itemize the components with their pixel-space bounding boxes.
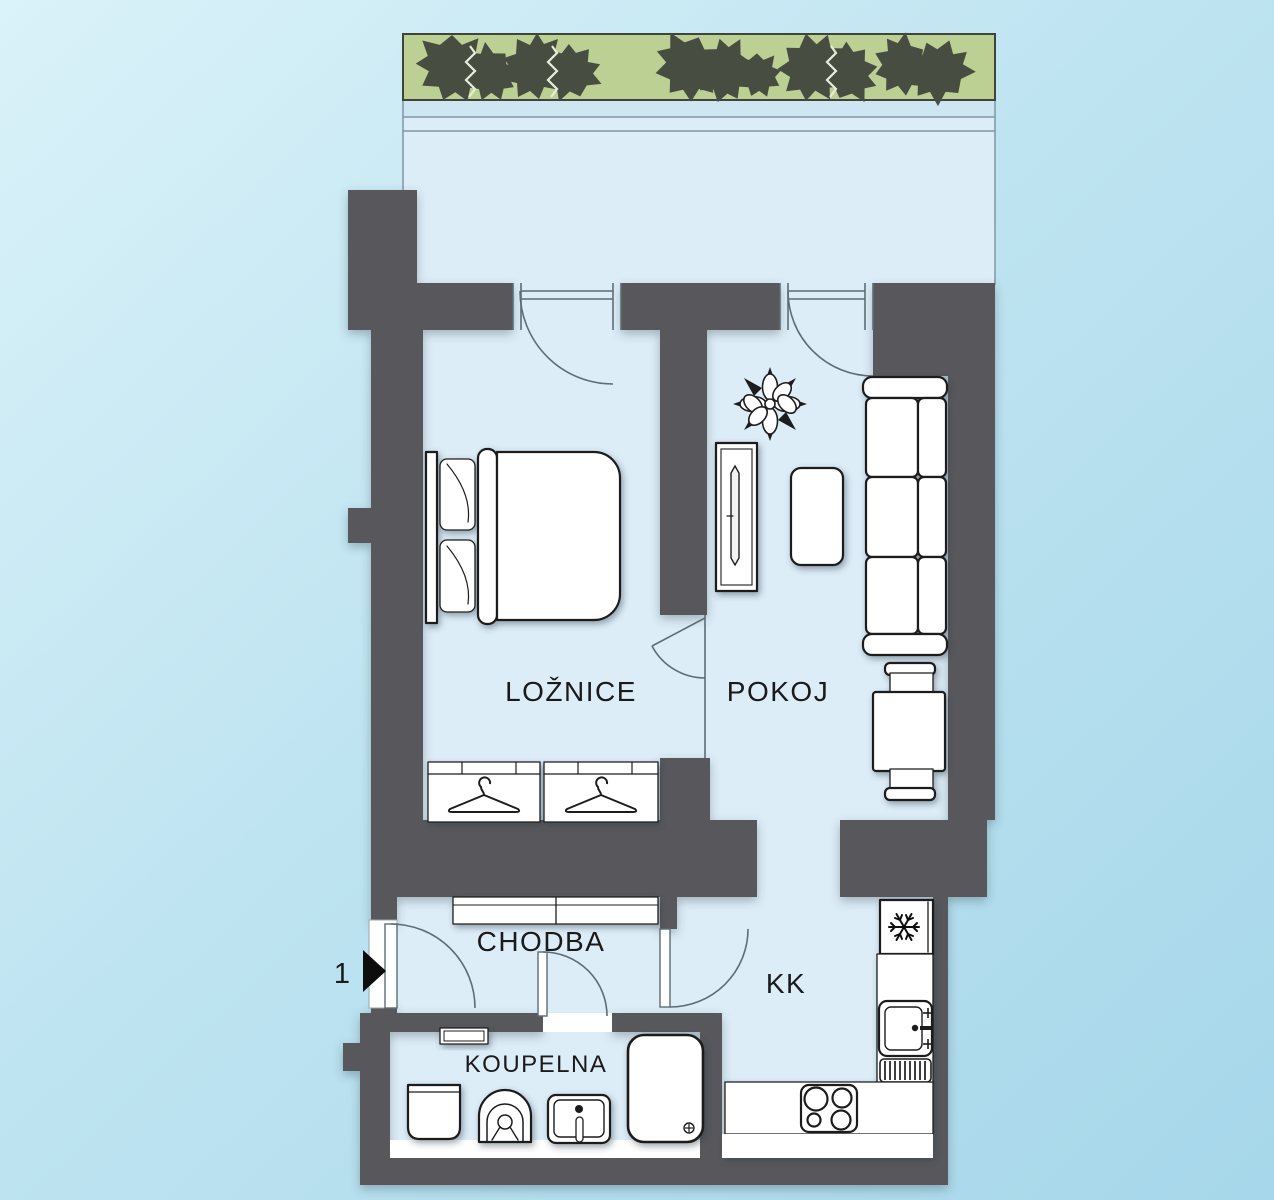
chair-seat	[890, 673, 933, 694]
wall	[360, 1158, 948, 1185]
sofa-seat	[866, 398, 918, 477]
sofa	[863, 377, 947, 655]
wall	[348, 508, 371, 543]
flower-icon	[733, 367, 807, 441]
bathroom-sink	[548, 1095, 610, 1143]
hall-closet	[453, 897, 658, 924]
drain-icon	[575, 1105, 583, 1113]
tv-cabinet	[716, 443, 757, 591]
wall	[933, 897, 948, 1160]
counter-backsplash	[722, 1134, 933, 1158]
burner-icon	[808, 1114, 821, 1127]
floor-plan-canvas: 1 LOŽNICE POKOJ CHODBA KK KOUPELNA	[0, 0, 1274, 1200]
burner-icon	[805, 1088, 828, 1111]
greenery-strip	[403, 23, 995, 115]
floor-plan-page: 1 LOŽNICE POKOJ CHODBA KK KOUPELNA	[0, 0, 1274, 1200]
burner-icon	[832, 1111, 851, 1130]
wall	[343, 1043, 360, 1071]
wall-shelf	[440, 1028, 488, 1044]
faucet-icon	[576, 1117, 583, 1142]
sofa-seat	[866, 557, 918, 634]
balcony-door-bay-1	[513, 283, 621, 330]
wall	[660, 897, 677, 929]
bed-duvet-fold	[478, 449, 497, 624]
room-label-loznice: LOŽNICE	[505, 676, 637, 707]
bed-mattress	[497, 452, 620, 620]
chair-back	[885, 788, 935, 800]
sofa-seat	[866, 477, 918, 557]
washing-machine	[408, 1085, 460, 1139]
sofa-backrest	[918, 398, 946, 477]
terrace	[403, 23, 995, 285]
room-label-chodba: CHODBA	[477, 926, 606, 957]
bed-headboard	[426, 452, 437, 623]
door-leaf	[660, 929, 670, 1007]
room-label-koupelna: KOUPELNA	[465, 1051, 608, 1078]
pillow	[440, 459, 475, 530]
room-label-kk: KK	[766, 968, 806, 999]
wall	[612, 1013, 722, 1032]
wall	[348, 190, 417, 285]
door-sill	[543, 1013, 612, 1032]
door-leaf	[538, 952, 547, 1016]
terrace-edge-band	[403, 100, 995, 117]
entrance-number: 1	[334, 958, 350, 990]
room-label-pokoj: POKOJ	[727, 676, 829, 707]
shower	[628, 1035, 703, 1142]
wall	[948, 283, 995, 820]
sofa-backrest	[918, 557, 946, 634]
drain-icon	[912, 1025, 918, 1031]
sofa-armrest	[863, 377, 947, 398]
terrace-floor	[403, 100, 995, 285]
toilet	[479, 1090, 531, 1142]
wall	[371, 897, 397, 922]
burner-icon	[833, 1089, 852, 1108]
wall	[660, 758, 710, 822]
chair-seat	[890, 769, 933, 790]
dining-table	[873, 692, 945, 771]
door-leaf	[385, 924, 397, 1008]
sofa-backrest	[918, 477, 946, 557]
wall	[840, 820, 987, 897]
pillow	[440, 540, 475, 612]
wall	[371, 283, 423, 820]
floor-passage	[757, 820, 840, 897]
sofa-armrest	[863, 634, 947, 655]
wall	[371, 820, 757, 897]
wall-partition	[660, 283, 707, 615]
coffee-table	[791, 468, 843, 565]
